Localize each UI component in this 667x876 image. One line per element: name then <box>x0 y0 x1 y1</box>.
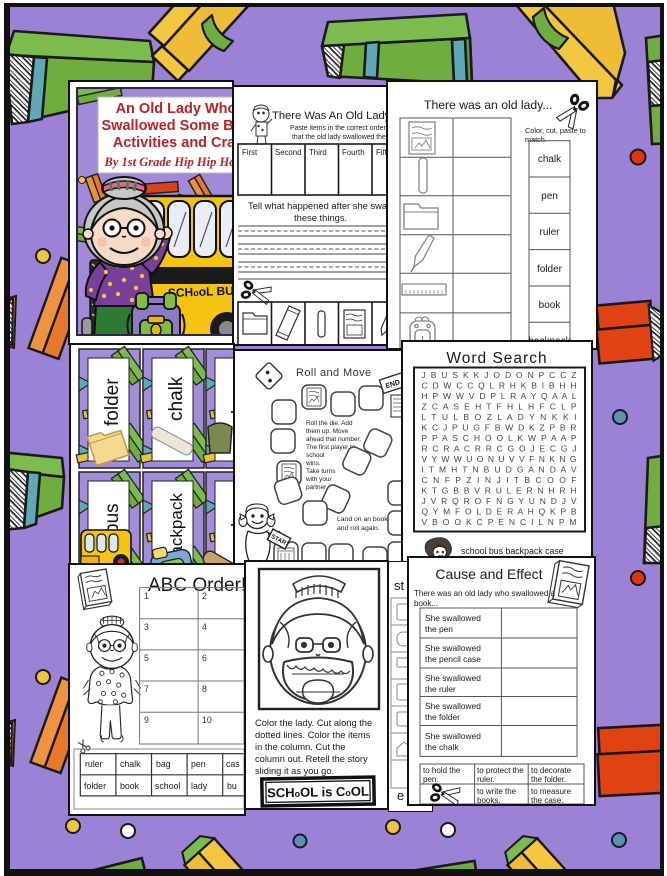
svg-text:3: 3 <box>144 622 149 632</box>
svg-text:bag: bag <box>156 759 171 769</box>
svg-text:book...: book... <box>414 599 438 608</box>
svg-text:Third: Third <box>309 148 327 157</box>
svg-text:to decorate: to decorate <box>531 766 572 775</box>
svg-text:K C J P U G F B W D K Z P B R: K C J P U G F B W D K Z P B R <box>422 423 577 433</box>
svg-text:J V R Q R O F N G Y U N D J V: J V R Q R O F N G Y U N D J V <box>422 496 577 506</box>
svg-text:She swallowed: She swallowed <box>425 673 481 683</box>
svg-text:the case.: the case. <box>531 796 563 804</box>
svg-text:the pen: the pen <box>425 624 453 634</box>
svg-text:V B O O K C P E N C I L N P M: V B O O K C P E N C I L N P M <box>422 517 577 527</box>
svg-text:V Y W W U O N U V V F N K N G: V Y W W U O N U V V F N K N G <box>422 454 577 464</box>
svg-text:Swallowed Some Bo: Swallowed Some Bo <box>102 118 233 134</box>
svg-text:in the column. Cut the: in the column. Cut the <box>255 742 345 752</box>
svg-text:Cause and Effect: Cause and Effect <box>435 566 542 582</box>
svg-text:book: book <box>120 781 140 791</box>
svg-text:By 1st Grade Hip Hip Ho: By 1st Grade Hip Hip Ho <box>104 155 232 169</box>
svg-text:2: 2 <box>202 591 207 601</box>
svg-text:There was an old lady...: There was an old lady... <box>424 98 553 112</box>
svg-text:Z C A S E H T F H L H F C L P: Z C A S E H T F H L H F C L P <box>422 402 577 412</box>
svg-text:them up. Move: them up. Move <box>306 428 349 435</box>
svg-text:ruler: ruler <box>85 759 103 769</box>
svg-text:Land on an book: Land on an book <box>337 516 388 523</box>
svg-text:Q Y M F O L D E R A H Q K P B: Q Y M F O L D E R A H Q K P B <box>422 507 577 517</box>
svg-text:H P W W V D P L R A Y Q A A L: H P W W V D P L R A Y Q A A L <box>422 391 577 401</box>
svg-text:Activities and Cra: Activities and Cra <box>113 135 232 151</box>
svg-text:Second: Second <box>275 148 301 157</box>
svg-text:Word Search: Word Search <box>446 350 547 367</box>
svg-text:the folder.: the folder. <box>531 775 566 784</box>
svg-text:school: school <box>306 452 324 459</box>
svg-text:I T M H T N B U D G A N D A V: I T M H T N B U D G A N D A V <box>422 465 577 475</box>
svg-text:sliding it as you go.: sliding it as you go. <box>255 766 334 776</box>
svg-text:the folder: the folder <box>425 712 460 722</box>
svg-text:pen: pen <box>541 191 558 202</box>
svg-text:Tell what happened after she s: Tell what happened after she swall <box>248 200 391 211</box>
svg-text:folder: folder <box>102 378 123 426</box>
svg-text:7: 7 <box>144 684 149 694</box>
svg-text:pen: pen <box>191 759 206 769</box>
svg-text:She swallowed: She swallowed <box>425 731 481 741</box>
svg-text:6: 6 <box>202 653 207 663</box>
svg-text:Take turns: Take turns <box>306 468 335 475</box>
svg-text:ABC Order!: ABC Order! <box>148 575 244 596</box>
svg-text:K T G B B V R U L E R N H R H: K T G B B V R U L E R N H R H <box>422 486 577 496</box>
svg-text:R C R A C R R C G O J E C G J: R C R A C R R C G O J E C G J <box>422 444 577 454</box>
svg-text:Color the lady. Cut along the: Color the lady. Cut along the <box>255 718 372 728</box>
svg-text:partner.: partner. <box>306 484 328 491</box>
svg-text:with your: with your <box>305 476 332 483</box>
svg-text:and roll again.: and roll again. <box>337 525 380 532</box>
svg-text:She swallowed: She swallowed <box>425 613 481 623</box>
svg-text:book: book <box>539 300 562 311</box>
svg-text:P P A S C H O O L K W P A A P: P P A S C H O O L K W P A A P <box>422 433 577 443</box>
svg-text:C D W C C Q L R H K B I B H H: C D W C C Q L R H K B I B H H <box>422 381 577 391</box>
svg-text:dotted lines. Color the items: dotted lines. Color the items <box>255 730 371 740</box>
svg-text:SCHoOL is CoOL: SCHoOL is CoOL <box>267 784 369 801</box>
svg-text:C N F P Z I N J I T B C O O F: C N F P Z I N J I T B C O O F <box>422 475 577 485</box>
svg-text:Paste items in the correct ord: Paste items in the correct order <box>290 125 386 132</box>
svg-text:bu: bu <box>227 781 237 791</box>
svg-text:lady: lady <box>191 781 208 791</box>
svg-text:5: 5 <box>144 653 149 663</box>
svg-text:to write the: to write the <box>477 787 517 796</box>
svg-text:chalk: chalk <box>166 376 187 421</box>
svg-text:ruler: ruler <box>539 227 560 238</box>
svg-text:e: e <box>397 788 404 803</box>
svg-text:SCHooL BUS: SCHooL BUS <box>168 283 232 300</box>
svg-text:There Was An Old Lady...: There Was An Old Lady... <box>272 110 399 122</box>
svg-text:There was an old lady who swal: There was an old lady who swallowed a <box>414 589 556 598</box>
svg-text:1: 1 <box>144 591 149 601</box>
svg-text:folder: folder <box>84 781 106 791</box>
svg-text:column out. Retell the story: column out. Retell the story <box>255 754 368 764</box>
svg-text:10: 10 <box>202 715 212 725</box>
svg-text:wins.: wins. <box>305 460 321 467</box>
svg-text:4: 4 <box>202 622 207 632</box>
svg-text:She swallowed: She swallowed <box>425 701 481 711</box>
svg-text:to hold the: to hold the <box>423 766 461 775</box>
svg-text:folder: folder <box>537 264 563 275</box>
svg-text:ahead that number.: ahead that number. <box>306 436 361 443</box>
svg-text:cas: cas <box>226 759 240 769</box>
svg-text:to measure: to measure <box>531 787 572 796</box>
svg-text:to protect the: to protect the <box>477 766 524 775</box>
svg-text:the pencil case: the pencil case <box>425 654 481 664</box>
svg-text:ruler.: ruler. <box>477 775 495 784</box>
svg-text:school: school <box>155 781 180 791</box>
svg-text:Roll and Move: Roll and Move <box>296 367 372 379</box>
svg-text:school bus backpack case: school bus backpack case <box>461 546 564 556</box>
svg-text:pen.: pen. <box>423 775 439 784</box>
svg-text:the ruler: the ruler <box>425 684 456 694</box>
svg-text:She swallowed: She swallowed <box>425 643 481 653</box>
svg-text:match.: match. <box>525 135 547 144</box>
svg-text:chalk: chalk <box>538 154 562 165</box>
svg-text:the chalk: the chalk <box>425 742 459 752</box>
svg-text:Roll the die. Add: Roll the die. Add <box>306 420 353 427</box>
svg-text:J B U S K K J O D O N P C C Z: J B U S K K J O D O N P C C Z <box>422 370 577 380</box>
svg-text:Fourth: Fourth <box>342 148 365 157</box>
svg-text:these things.: these things. <box>294 212 347 223</box>
svg-text:that the old lady swallowed th: that the old lady swallowed them. <box>292 134 394 141</box>
svg-text:9: 9 <box>144 715 149 725</box>
svg-text:8: 8 <box>202 684 207 694</box>
svg-text:L T U L B O Z L A D Y N K K I: L T U L B O Z L A D Y N K K I <box>422 412 577 422</box>
svg-text:books.: books. <box>477 796 501 804</box>
svg-text:An Old Lady Who: An Old Lady Who <box>116 101 232 117</box>
svg-text:chalk: chalk <box>120 759 141 769</box>
svg-text:Color, cut, paste to: Color, cut, paste to <box>525 126 586 135</box>
svg-text:st: st <box>394 578 405 593</box>
svg-text:First: First <box>242 148 258 157</box>
